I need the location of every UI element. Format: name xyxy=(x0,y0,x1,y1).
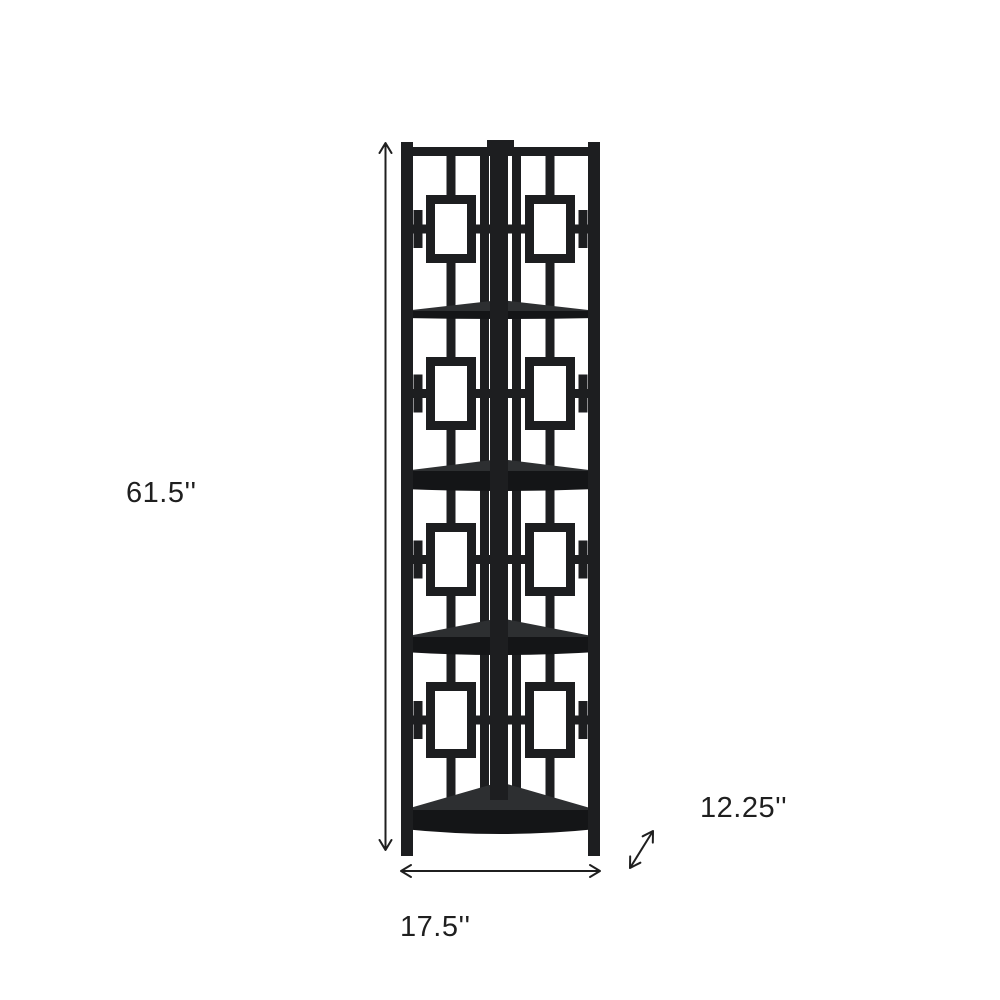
square-motif-frame xyxy=(530,528,571,592)
square-motif-frame xyxy=(530,362,571,426)
square-top-connector xyxy=(447,318,456,357)
square-top-connector xyxy=(546,156,555,195)
outer-cross-bar xyxy=(414,375,423,413)
inner-horizontal-stub xyxy=(506,389,526,398)
square-bottom-connector xyxy=(447,758,456,800)
corner-post xyxy=(490,141,508,800)
outer-cross-bar xyxy=(579,701,588,739)
right-leg xyxy=(588,142,600,856)
square-motif-frame xyxy=(431,200,472,259)
square-motif-frame xyxy=(431,687,472,754)
outer-cross-bar xyxy=(414,541,423,579)
square-bottom-connector xyxy=(546,263,555,308)
square-bottom-connector xyxy=(447,596,456,632)
height-dimension-label: 61.5'' xyxy=(126,477,197,510)
square-motif-frame xyxy=(431,362,472,426)
square-bottom-connector xyxy=(546,596,555,632)
inner-horizontal-stub xyxy=(506,716,526,725)
square-top-connector xyxy=(546,318,555,357)
square-motif-frame xyxy=(530,200,571,259)
square-top-connector xyxy=(546,489,555,523)
square-bottom-connector xyxy=(447,263,456,308)
square-bottom-connector xyxy=(546,758,555,800)
square-motif-frame xyxy=(530,687,571,754)
inner-horizontal-stub xyxy=(506,555,526,564)
outer-cross-bar xyxy=(414,210,423,248)
product-image: 61.5'' 17.5'' 12.25'' xyxy=(0,0,1000,1000)
inner-vertical-bar xyxy=(512,652,521,800)
width-dimension-label: 17.5'' xyxy=(400,911,471,944)
square-bottom-connector xyxy=(546,430,555,468)
inner-vertical-bar xyxy=(480,652,489,800)
depth-dimension-label: 12.25'' xyxy=(700,792,787,825)
outer-cross-bar xyxy=(579,541,588,579)
inner-horizontal-stub xyxy=(506,225,526,234)
square-top-connector xyxy=(447,652,456,682)
square-top-connector xyxy=(447,489,456,523)
square-top-connector xyxy=(546,652,555,682)
shelf-front-edge xyxy=(403,810,597,834)
outer-cross-bar xyxy=(579,210,588,248)
outer-cross-bar xyxy=(414,701,423,739)
outer-cross-bar xyxy=(579,375,588,413)
square-bottom-connector xyxy=(447,430,456,468)
left-leg xyxy=(401,142,413,856)
square-top-connector xyxy=(447,156,456,195)
square-motif-frame xyxy=(431,528,472,592)
depth-dimension-arrow xyxy=(630,831,653,868)
